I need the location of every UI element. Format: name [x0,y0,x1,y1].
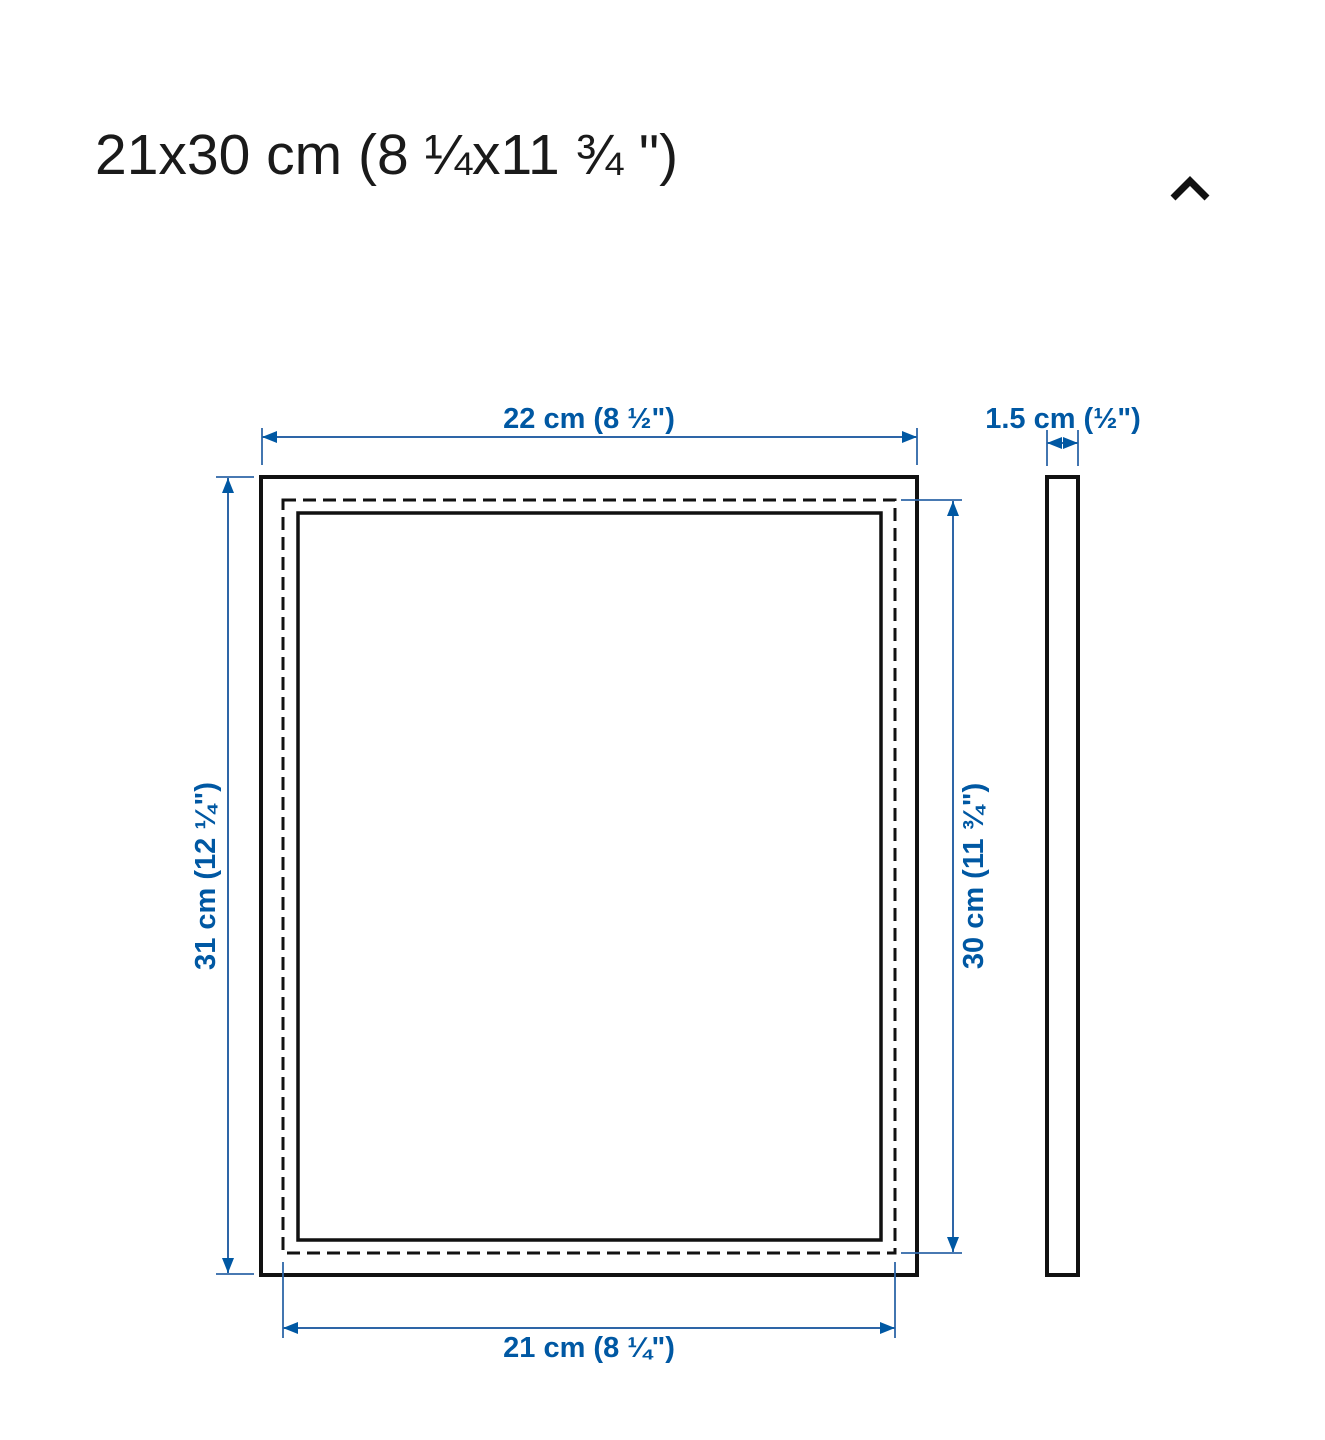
dimension-outer-height: 31 cm (12 ¼") [190,477,254,1274]
outer-height-label: 31 cm (12 ¼") [190,782,222,970]
frame-side-view [1047,477,1078,1275]
dimension-picture-width: 21 cm (8 ¼") [283,1262,895,1364]
frame-front-view [261,477,917,1275]
frame-outer-edge [261,477,917,1275]
picture-width-label: 21 cm (8 ¼") [503,1332,675,1364]
frame-side-profile [1047,477,1078,1275]
depth-label: 1.5 cm (½") [985,403,1141,435]
frame-dimensions-diagram: 22 cm (8 ½") 31 cm (12 ¼") 30 cm (11 ¾")… [0,0,1325,1440]
dimension-depth: 1.5 cm (½") [985,403,1141,466]
dimensions-section: 21x30 cm (8 ¼x11 ¾ ") [0,0,1325,1440]
picture-height-label: 30 cm (11 ¾") [958,783,990,969]
dimension-outer-width: 22 cm (8 ½") [262,403,917,465]
outer-width-label: 22 cm (8 ½") [503,403,675,435]
